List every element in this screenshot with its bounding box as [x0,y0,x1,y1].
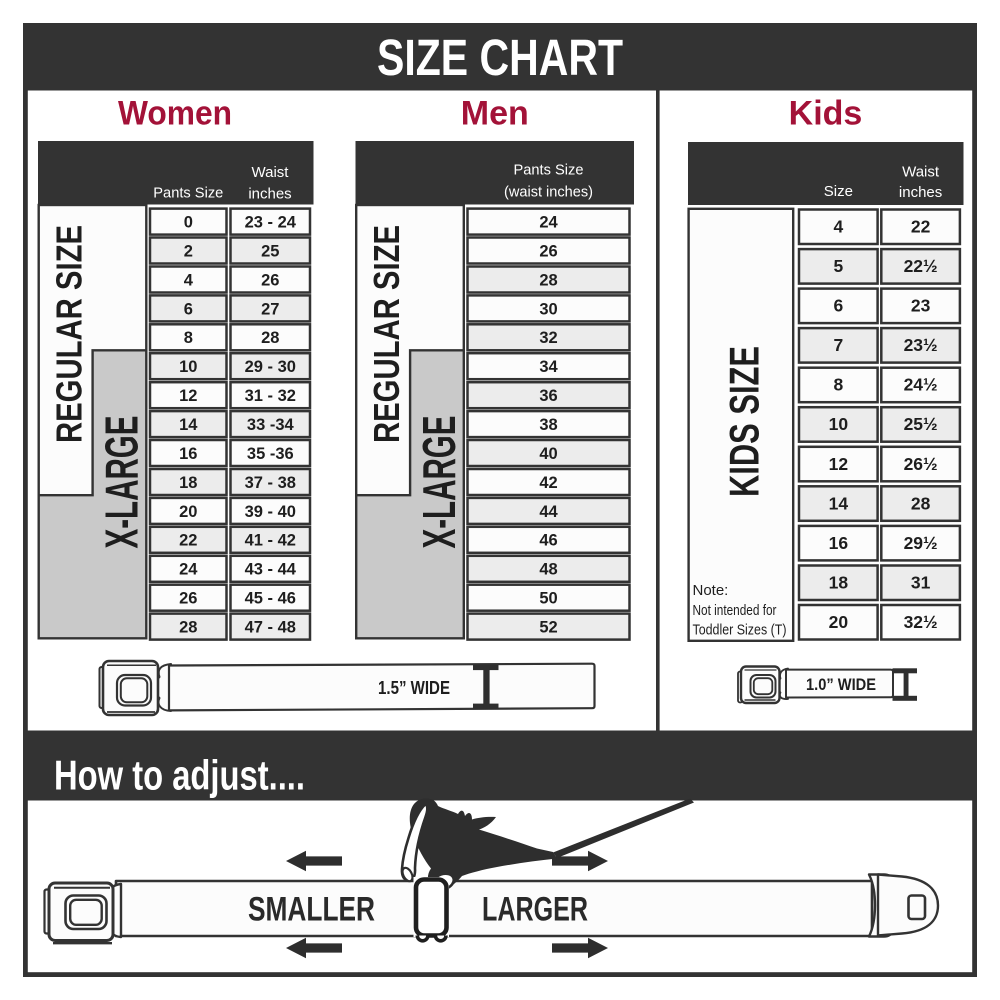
svg-text:Men: Men [461,95,529,133]
svg-text:50: 50 [539,590,557,608]
svg-text:SIZE CHART: SIZE CHART [377,29,623,86]
svg-text:24: 24 [539,214,558,232]
svg-text:7: 7 [834,335,844,355]
svg-text:44: 44 [539,503,558,521]
svg-text:X-LARGE: X-LARGE [96,416,148,549]
svg-text:47 - 48: 47 - 48 [245,619,296,637]
svg-text:16: 16 [829,533,849,553]
svg-text:48: 48 [539,561,557,579]
svg-text:X-LARGE: X-LARGE [413,416,465,549]
svg-text:inches: inches [248,186,291,203]
svg-text:45 - 46: 45 - 46 [245,590,296,608]
svg-text:8: 8 [834,375,844,395]
svg-text:REGULAR SIZE: REGULAR SIZE [49,225,90,443]
svg-text:How to adjust....: How to adjust.... [54,752,305,799]
svg-text:Not intended for: Not intended for [693,602,777,619]
svg-text:18: 18 [829,573,849,593]
svg-text:14: 14 [179,416,198,434]
svg-text:42: 42 [539,474,557,492]
svg-text:38: 38 [539,416,557,434]
svg-text:Toddler Sizes (T): Toddler Sizes (T) [693,622,787,639]
svg-text:28: 28 [911,493,931,513]
svg-text:26: 26 [261,271,279,289]
svg-text:35 -36: 35 -36 [247,445,294,463]
svg-text:34: 34 [539,358,558,376]
svg-text:25: 25 [261,242,279,260]
svg-text:28: 28 [179,619,197,637]
svg-text:inches: inches [899,184,942,201]
svg-text:10: 10 [179,358,197,376]
svg-text:27: 27 [261,300,279,318]
svg-text:23: 23 [911,296,931,316]
svg-text:14: 14 [829,493,849,513]
svg-text:20: 20 [829,612,849,632]
svg-text:4: 4 [834,217,844,237]
svg-text:5: 5 [834,256,844,276]
svg-text:Kids: Kids [789,95,863,133]
svg-text:26: 26 [539,242,557,260]
svg-text:LARGER: LARGER [482,891,588,929]
svg-text:31: 31 [911,573,931,593]
svg-text:Note:: Note: [693,582,729,599]
svg-text:Waist: Waist [252,164,290,181]
svg-text:32½: 32½ [904,612,938,632]
svg-text:30: 30 [539,300,557,318]
svg-text:1.5” WIDE: 1.5” WIDE [378,677,450,698]
svg-text:10: 10 [829,414,849,434]
svg-text:26½: 26½ [904,454,938,474]
svg-text:28: 28 [261,329,279,347]
svg-text:23 - 24: 23 - 24 [245,214,297,232]
svg-text:2: 2 [184,242,193,260]
svg-text:Pants Size: Pants Size [514,162,584,179]
svg-text:22½: 22½ [904,256,938,276]
svg-text:39 - 40: 39 - 40 [245,503,296,521]
svg-text:Size: Size [824,183,853,200]
svg-text:28: 28 [539,271,557,289]
svg-text:18: 18 [179,474,197,492]
svg-text:0: 0 [184,214,193,232]
svg-text:(waist inches): (waist inches) [504,184,593,201]
svg-text:33 -34: 33 -34 [247,416,295,434]
svg-text:36: 36 [539,387,557,405]
svg-text:SMALLER: SMALLER [248,891,375,929]
svg-text:31 - 32: 31 - 32 [245,387,296,405]
svg-text:52: 52 [539,619,557,637]
svg-text:12: 12 [829,454,849,474]
svg-text:KIDS SIZE: KIDS SIZE [721,346,768,497]
svg-text:43 - 44: 43 - 44 [245,561,297,579]
svg-text:16: 16 [179,445,197,463]
svg-text:25½: 25½ [904,414,938,434]
svg-text:REGULAR SIZE: REGULAR SIZE [366,225,407,443]
svg-text:22: 22 [179,532,197,550]
svg-text:41 - 42: 41 - 42 [245,532,296,550]
svg-text:46: 46 [539,532,557,550]
svg-text:24½: 24½ [904,375,938,395]
svg-text:29 - 30: 29 - 30 [245,358,296,376]
svg-text:1.0” WIDE: 1.0” WIDE [806,675,876,694]
svg-text:Pants Size: Pants Size [153,185,223,202]
svg-text:29½: 29½ [904,533,938,553]
svg-text:40: 40 [539,445,557,463]
svg-text:6: 6 [834,296,844,316]
svg-text:12: 12 [179,387,197,405]
svg-text:Waist: Waist [902,164,940,181]
svg-text:26: 26 [179,590,197,608]
svg-text:Women: Women [118,95,232,133]
svg-text:24: 24 [179,561,198,579]
svg-text:22: 22 [911,217,931,237]
svg-text:20: 20 [179,503,197,521]
svg-text:8: 8 [184,329,193,347]
svg-text:37 - 38: 37 - 38 [245,474,296,492]
svg-text:32: 32 [539,329,557,347]
svg-text:4: 4 [184,271,194,289]
svg-text:6: 6 [184,300,193,318]
svg-text:23½: 23½ [904,335,938,355]
